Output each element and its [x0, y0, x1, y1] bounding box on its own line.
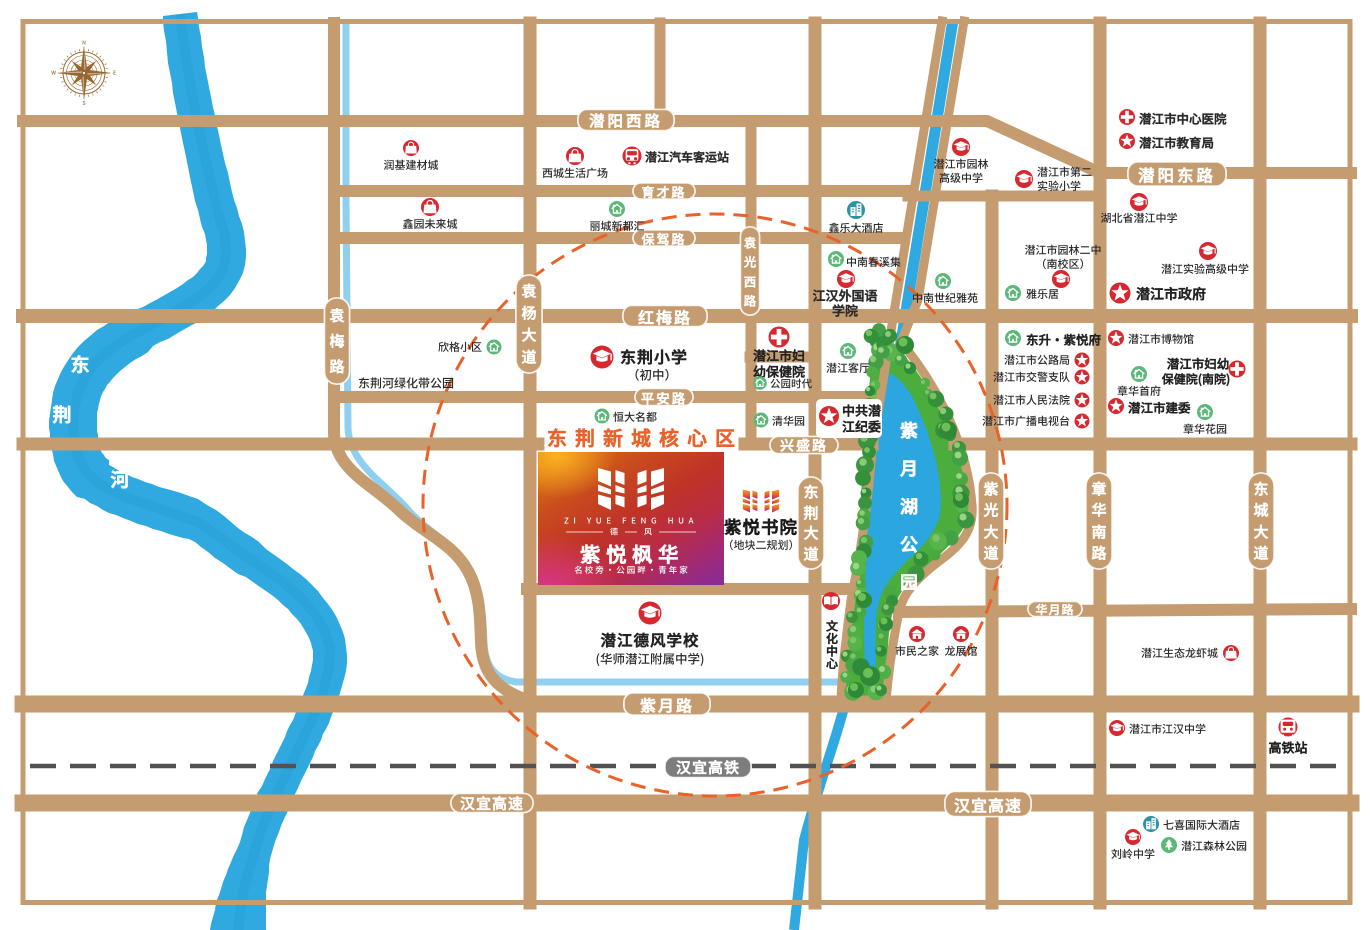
svg-text:汉宜高速: 汉宜高速: [460, 793, 524, 814]
svg-text:园: 园: [900, 569, 918, 595]
svg-text:实验小学: 实验小学: [1037, 178, 1081, 194]
svg-text:大: 大: [1252, 521, 1268, 542]
svg-text:汉宜高铁: 汉宜高铁: [676, 757, 740, 778]
svg-text:市民之家: 市民之家: [895, 643, 939, 659]
svg-text:丽城新都汇: 丽城新都汇: [590, 218, 645, 234]
svg-text:平安路: 平安路: [641, 388, 688, 408]
svg-text:路: 路: [329, 356, 345, 377]
svg-text:E: E: [113, 70, 116, 77]
svg-text:华: 华: [1091, 500, 1106, 521]
svg-text:七喜国际大酒店: 七喜国际大酒店: [1163, 817, 1240, 833]
svg-text:章华花园: 章华花园: [1183, 421, 1227, 437]
svg-text:N: N: [82, 40, 86, 47]
svg-text:德: 德: [610, 527, 618, 538]
svg-text:潜江汽车客运站: 潜江汽车客运站: [645, 149, 729, 166]
svg-text:道: 道: [1253, 543, 1268, 564]
svg-text:红梅路: 红梅路: [637, 305, 692, 329]
svg-text:（南校区）: （南校区）: [1036, 256, 1091, 272]
svg-text:东升·紫悦府: 东升·紫悦府: [1026, 330, 1102, 349]
svg-text:紫: 紫: [900, 417, 918, 443]
svg-text:高铁站: 高铁站: [1268, 738, 1307, 757]
svg-text:潜江市公路局: 潜江市公路局: [1004, 352, 1070, 368]
svg-text:S: S: [82, 100, 85, 107]
svg-text:杨: 杨: [521, 303, 536, 324]
svg-text:ZI YUE FENG HUA: ZI YUE FENG HUA: [564, 516, 698, 527]
svg-text:保健院(南院): 保健院(南院): [1161, 371, 1231, 388]
svg-text:道: 道: [803, 543, 818, 564]
svg-text:潜江市广播电视台: 潜江市广播电视台: [982, 413, 1070, 429]
svg-text:华月路: 华月路: [1035, 601, 1074, 618]
svg-text:路: 路: [744, 291, 757, 310]
svg-text:潜江市江汉中学: 潜江市江汉中学: [1129, 721, 1206, 737]
svg-text:月: 月: [899, 455, 918, 481]
svg-text:名校旁·公园畔·青年家: 名校旁·公园畔·青年家: [574, 564, 690, 576]
svg-text:东: 东: [70, 351, 89, 378]
svg-text:刘岭中学: 刘岭中学: [1111, 846, 1155, 862]
svg-text:江纪委: 江纪委: [842, 417, 882, 436]
svg-text:鑫乐大酒店: 鑫乐大酒店: [829, 220, 884, 236]
svg-text:潜江森林公园: 潜江森林公园: [1181, 838, 1247, 854]
svg-text:梅: 梅: [329, 331, 344, 352]
svg-text:雅乐居: 雅乐居: [1026, 286, 1059, 302]
svg-text:光: 光: [982, 500, 998, 521]
svg-text:大: 大: [982, 521, 998, 542]
svg-text:东荆河绿化带公园: 东荆河绿化带公园: [358, 375, 454, 392]
svg-text:风: 风: [644, 527, 652, 538]
svg-text:恒大名都: 恒大名都: [613, 409, 657, 425]
svg-text:南: 南: [1091, 521, 1106, 542]
svg-text:中南春溪集: 中南春溪集: [846, 254, 901, 270]
svg-text:潜江生态龙虾城: 潜江生态龙虾城: [1141, 645, 1218, 661]
svg-text:荆: 荆: [803, 502, 818, 523]
svg-text:保驾路: 保驾路: [640, 229, 686, 248]
svg-text:湖: 湖: [900, 493, 918, 519]
svg-text:紫: 紫: [983, 478, 998, 499]
svg-text:（地块二规划）: （地块二规划）: [723, 537, 800, 553]
svg-text:东荆新城核心区: 东荆新城核心区: [547, 423, 743, 452]
svg-text:潜江市人民法院: 潜江市人民法院: [993, 392, 1070, 408]
svg-text:西城生活广场: 西城生活广场: [542, 165, 608, 181]
svg-text:公园时代: 公园时代: [770, 377, 812, 392]
svg-text:潜江市博物馆: 潜江市博物馆: [1128, 331, 1194, 347]
svg-text:心: 心: [826, 655, 838, 672]
svg-text:城: 城: [1253, 500, 1268, 521]
svg-text:道: 道: [521, 347, 536, 368]
svg-text:袁: 袁: [328, 305, 345, 326]
svg-text:大: 大: [802, 523, 818, 544]
svg-text:光: 光: [743, 252, 757, 271]
svg-text:潜江实验高级中学: 潜江实验高级中学: [1161, 261, 1249, 277]
svg-text:润基建材城: 润基建材城: [384, 157, 439, 173]
svg-text:潜江市教育局: 潜江市教育局: [1139, 133, 1214, 152]
svg-text:潜阳西路: 潜阳西路: [589, 110, 663, 132]
svg-text:W: W: [51, 70, 56, 77]
svg-text:东: 东: [1253, 478, 1268, 499]
svg-text:东: 东: [803, 482, 818, 503]
svg-text:公: 公: [900, 531, 918, 557]
svg-text:学院: 学院: [832, 301, 858, 320]
svg-text:袁: 袁: [520, 281, 537, 302]
svg-text:龙展馆: 龙展馆: [945, 643, 978, 659]
svg-text:潜江市建委: 潜江市建委: [1128, 398, 1191, 417]
svg-text:育才路: 育才路: [641, 182, 686, 201]
svg-text:潜阳东路: 潜阳东路: [1138, 163, 1216, 187]
svg-text:紫月路: 紫月路: [640, 693, 694, 717]
svg-text:汉宜高速: 汉宜高速: [954, 793, 1022, 817]
svg-text:西: 西: [744, 271, 757, 290]
svg-text:紫悦书院: 紫悦书院: [724, 515, 798, 540]
svg-text:袁: 袁: [743, 232, 757, 251]
svg-text:道: 道: [983, 543, 998, 564]
svg-text:鑫园未来城: 鑫园未来城: [403, 216, 458, 232]
svg-text:中南世纪雅苑: 中南世纪雅苑: [912, 290, 978, 306]
svg-text:荆: 荆: [51, 401, 71, 428]
svg-text:欣格小区: 欣格小区: [438, 339, 482, 355]
svg-text:（初中）: （初中）: [627, 365, 677, 384]
svg-text:高级中学: 高级中学: [939, 170, 983, 186]
svg-text:河: 河: [109, 466, 129, 493]
svg-text:(华师潜江附属中学): (华师潜江附属中学): [596, 649, 705, 668]
svg-text:章: 章: [1091, 478, 1106, 499]
svg-text:兴盛路: 兴盛路: [779, 436, 828, 456]
svg-text:清华园: 清华园: [772, 413, 805, 429]
svg-text:潜江市交警支队: 潜江市交警支队: [993, 369, 1070, 385]
svg-text:潜江客厅: 潜江客厅: [826, 360, 870, 376]
svg-text:湖北省潜江中学: 湖北省潜江中学: [1101, 210, 1178, 226]
svg-text:路: 路: [1091, 543, 1107, 564]
svg-text:大: 大: [520, 325, 536, 346]
svg-text:潜江市政府: 潜江市政府: [1136, 284, 1206, 304]
svg-text:潜江市中心医院: 潜江市中心医院: [1139, 109, 1227, 128]
